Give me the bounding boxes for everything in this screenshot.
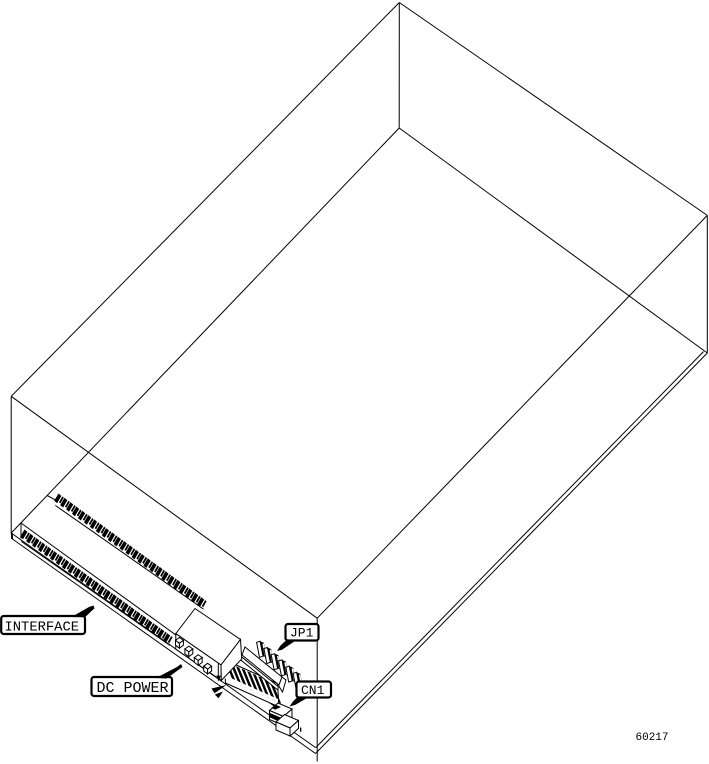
svg-text:DC POWER: DC POWER bbox=[97, 680, 169, 697]
svg-text:INTERFACE: INTERFACE bbox=[5, 621, 80, 636]
svg-text:JP1: JP1 bbox=[290, 626, 314, 641]
svg-text:60217: 60217 bbox=[636, 732, 669, 744]
svg-text:CN1: CN1 bbox=[301, 683, 325, 698]
